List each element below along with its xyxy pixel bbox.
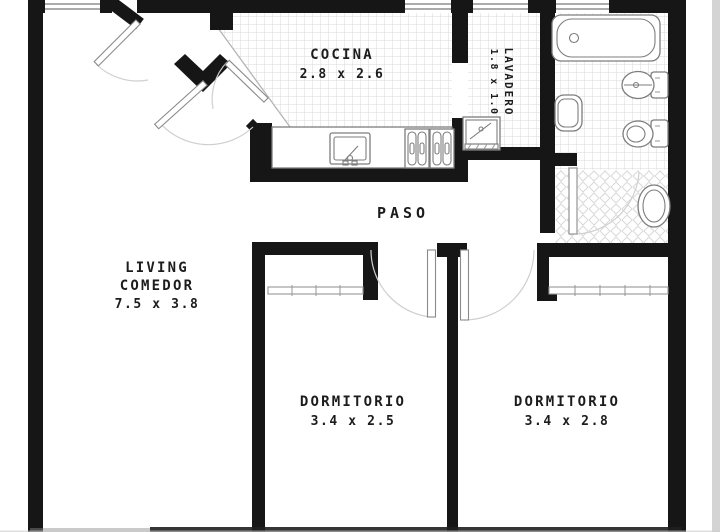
label-living-comedor: LIVING COMEDOR 7.5 x 3.8 xyxy=(115,260,200,312)
outer-wall-top-c xyxy=(137,0,405,13)
bedroom1-closet-front xyxy=(268,285,363,296)
living-bedroom1-wall xyxy=(252,242,265,532)
living-line1: LIVING xyxy=(125,260,189,276)
bathtub-icon xyxy=(552,15,660,61)
living-line2: COMEDOR xyxy=(120,278,194,294)
bidet-icon xyxy=(622,72,668,99)
kitchen-right-wall-upper xyxy=(452,13,468,63)
living-dims: 7.5 x 3.8 xyxy=(115,297,200,312)
dormitorio2-dims: 3.4 x 2.8 xyxy=(525,414,610,429)
entry-door xyxy=(94,20,148,81)
hall-window xyxy=(45,4,100,9)
laundry-window xyxy=(473,4,528,9)
dormitorio2-name: DORMITORIO xyxy=(514,394,620,410)
kitchen-window xyxy=(405,4,451,9)
kitchen-sink-icon xyxy=(330,133,370,165)
kitchen-bottom-wall xyxy=(250,168,468,182)
cocina-dims: 2.8 x 2.6 xyxy=(300,67,385,82)
floor-plan-canvas: COCINA 2.8 x 2.6 LAVADERO 1.8 x 1.0 PASO… xyxy=(0,0,720,532)
cocina-name: COCINA xyxy=(310,47,374,63)
bedroom2-door xyxy=(461,250,535,320)
bedroom1-door xyxy=(371,250,436,317)
bedroom2-closet-front xyxy=(549,285,668,296)
bedroom1-bedroom2-wall xyxy=(447,243,458,532)
laundry-tub-icon xyxy=(463,117,500,150)
bedroom1-top-wall xyxy=(252,242,378,255)
dormitorio1-name: DORMITORIO xyxy=(300,394,406,410)
bathroom-window xyxy=(556,4,609,9)
toilet-icon xyxy=(623,120,668,147)
lavadero-dims: 1.8 x 1.0 xyxy=(488,49,499,116)
outer-wall-top-d xyxy=(451,0,473,13)
bathroom-door-stub xyxy=(555,153,577,166)
cooktop-icon xyxy=(405,129,429,168)
floor-plan-svg: COCINA 2.8 x 2.6 LAVADERO 1.8 x 1.0 PASO… xyxy=(0,0,720,532)
label-dormitorio-1: DORMITORIO 3.4 x 2.5 xyxy=(300,394,406,429)
page-edge-strip xyxy=(712,0,720,532)
refrigerator-icon xyxy=(430,129,454,168)
bedroom2-left-stub xyxy=(537,243,549,300)
label-dormitorio-2: DORMITORIO 3.4 x 2.8 xyxy=(514,394,620,429)
bathroom-bottom-wall xyxy=(537,243,686,257)
outer-wall-top-a xyxy=(28,0,45,13)
label-paso: PASO xyxy=(377,204,429,222)
lavadero-name: LAVADERO xyxy=(502,48,515,117)
washbasin-icon xyxy=(555,95,582,131)
oval-basin-icon xyxy=(638,185,670,227)
outer-wall-left xyxy=(28,0,43,532)
dormitorio1-dims: 3.4 x 2.5 xyxy=(311,414,396,429)
hall-top-stub xyxy=(210,0,233,30)
outer-wall-top-e xyxy=(528,0,556,13)
outer-wall-right xyxy=(668,0,686,532)
